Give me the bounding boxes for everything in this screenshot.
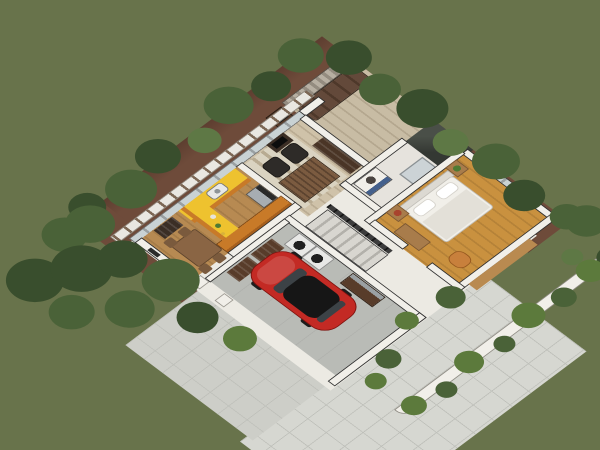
lot-plane bbox=[75, 36, 570, 407]
floorplan-render bbox=[0, 0, 600, 450]
